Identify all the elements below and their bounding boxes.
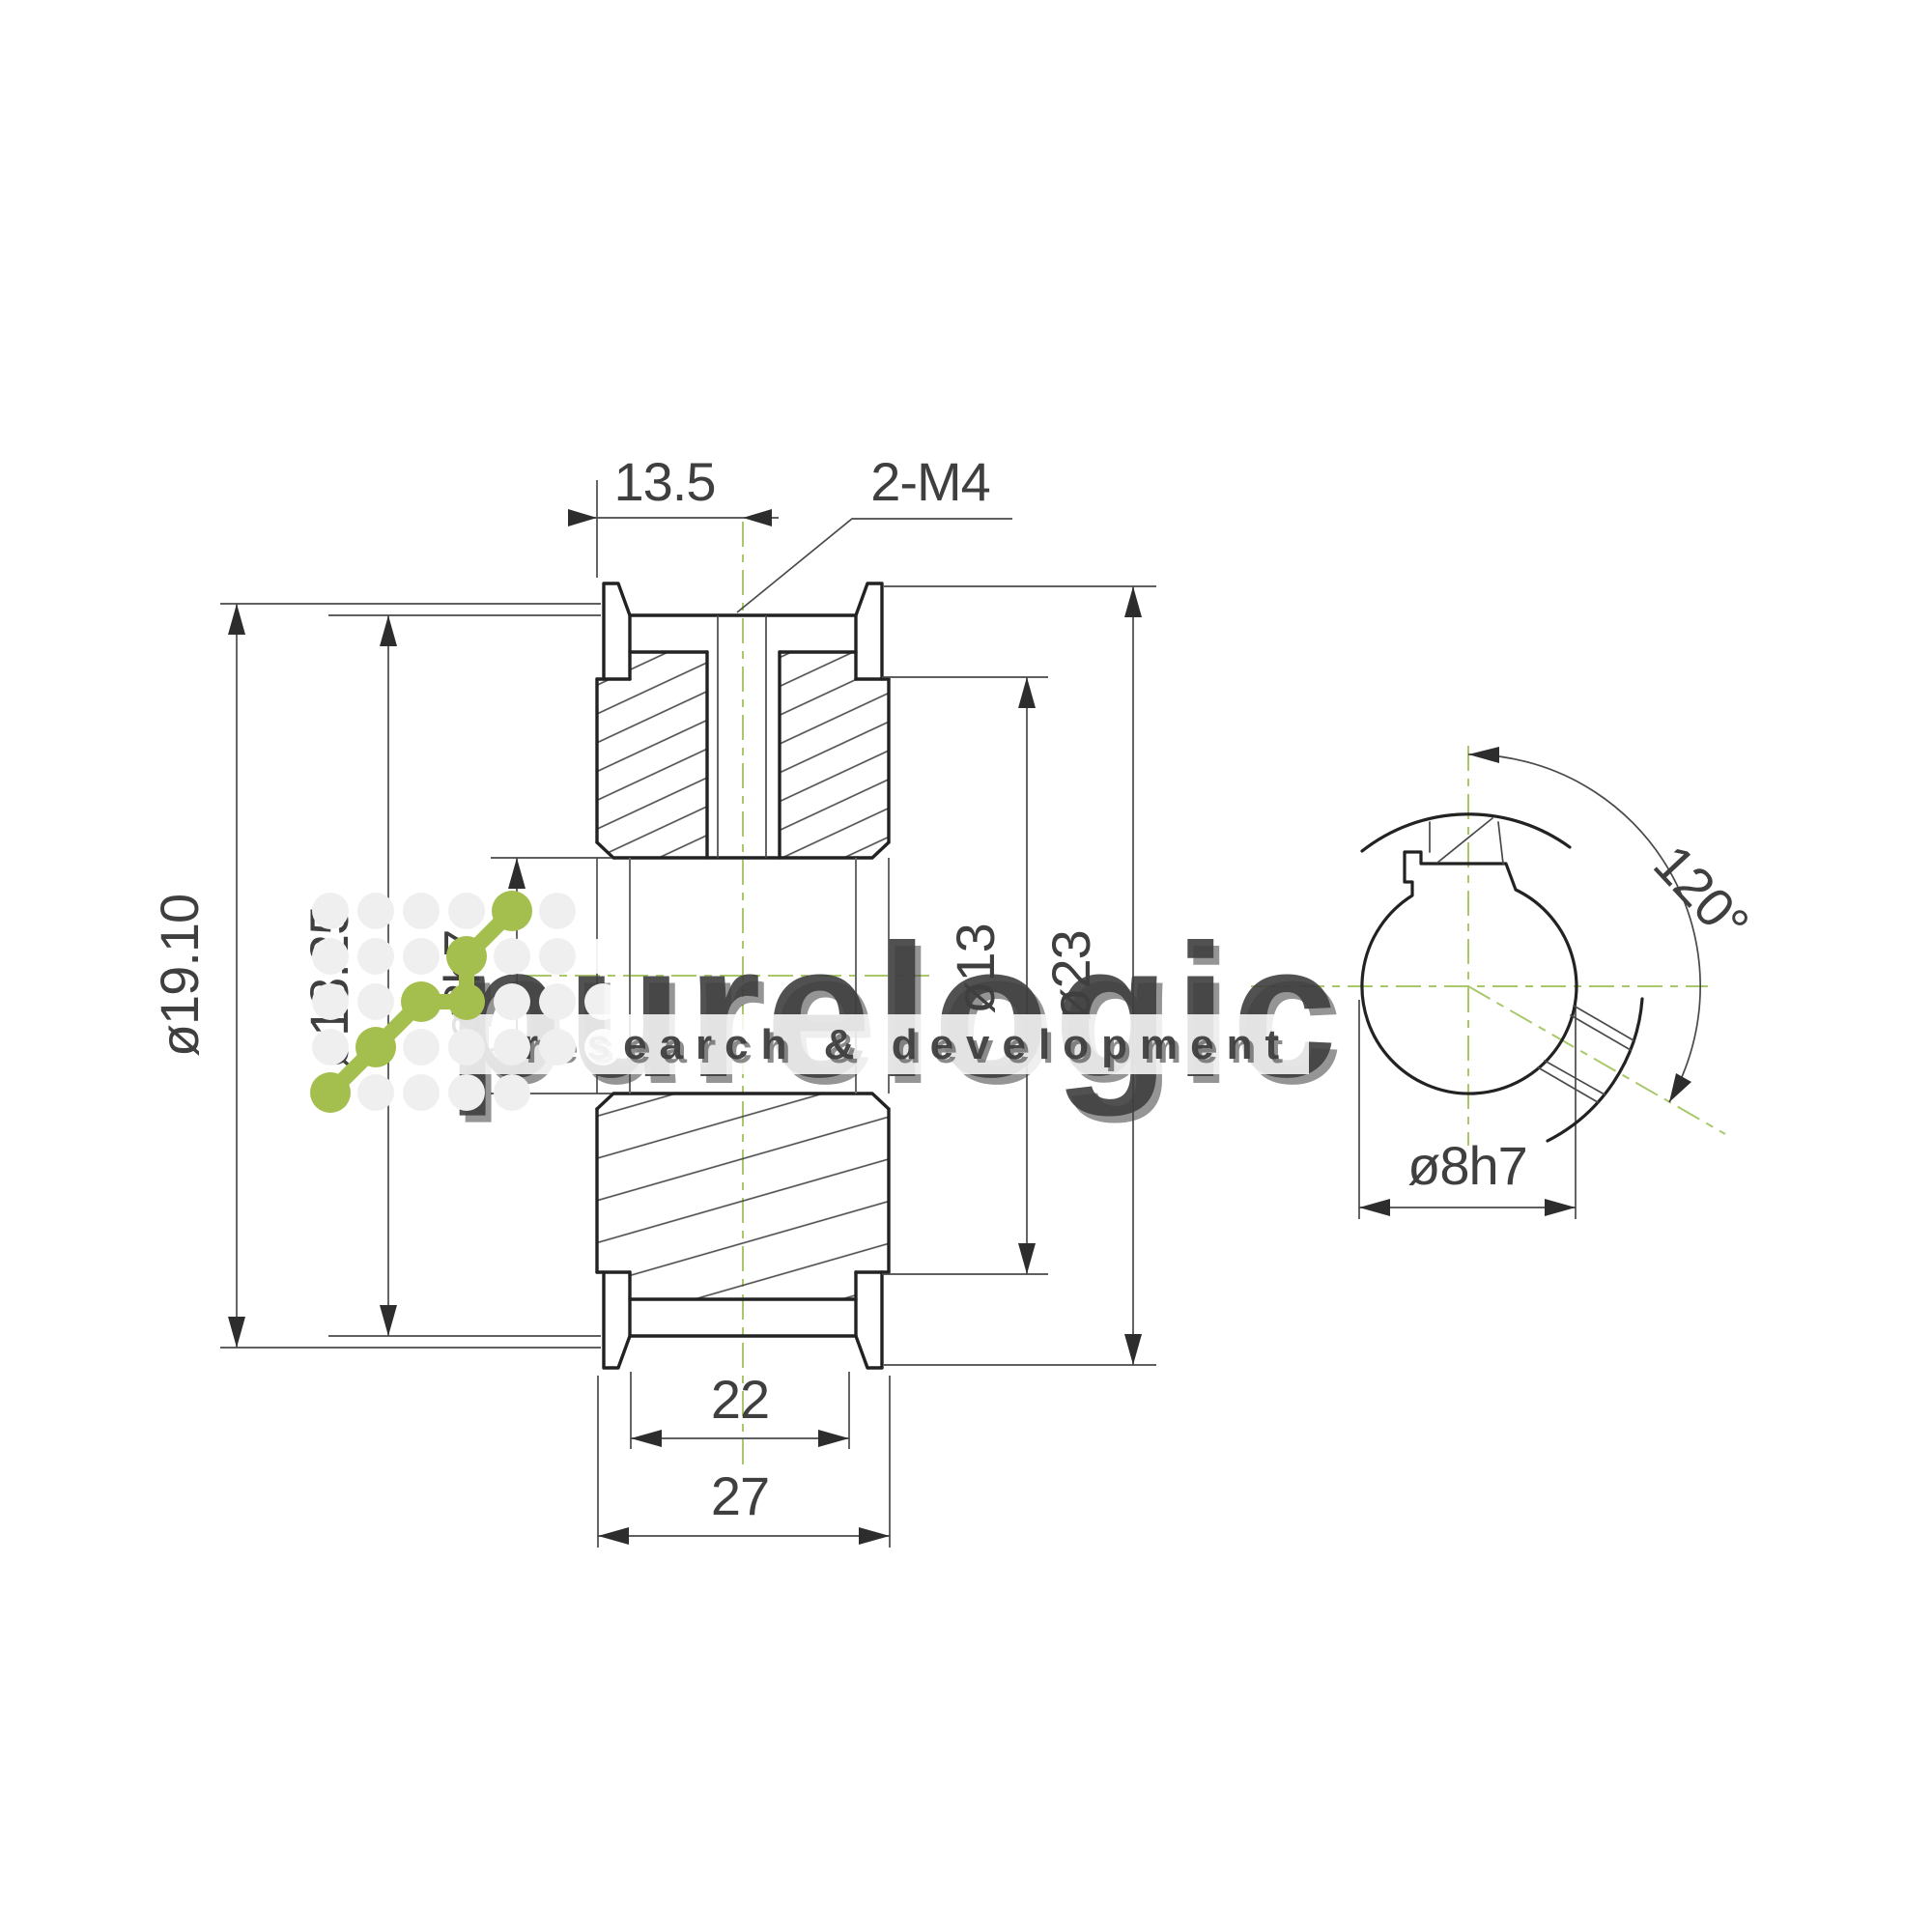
dim-overall-width: 27 [711,1465,769,1526]
dim-top-width: 13.5 [614,451,716,512]
logo-node [448,983,485,1020]
dim-hub-width: 22 [711,1369,769,1430]
logo-node [446,936,487,977]
logo-node [492,891,532,931]
logo-node [401,981,441,1022]
watermark: purelogic purelogic research & developme… [440,905,1348,1123]
pulley-technical-drawing: 13.5 2-M4 ø19.10 ø18.25 ø8h7 ø13 ø23 22 … [0,0,1932,1932]
dim-thread-callout: 2-M4 [870,451,990,512]
dim-bore-end: ø8h7 [1407,1135,1527,1196]
dim-pitch-diameter: ø19.10 [149,895,210,1057]
drawing-page: 13.5 2-M4 ø19.10 ø18.25 ø8h7 ø13 ø23 22 … [0,0,1932,1932]
hatch-upper-left [597,652,707,858]
logo-node [310,1072,351,1113]
hatch-upper-right [780,652,889,858]
hatch-lower [597,1094,889,1299]
logo-node [355,1027,396,1067]
watermark-brand: purelogic [446,905,1342,1117]
watermark-tagline: research & development [522,1021,1292,1068]
